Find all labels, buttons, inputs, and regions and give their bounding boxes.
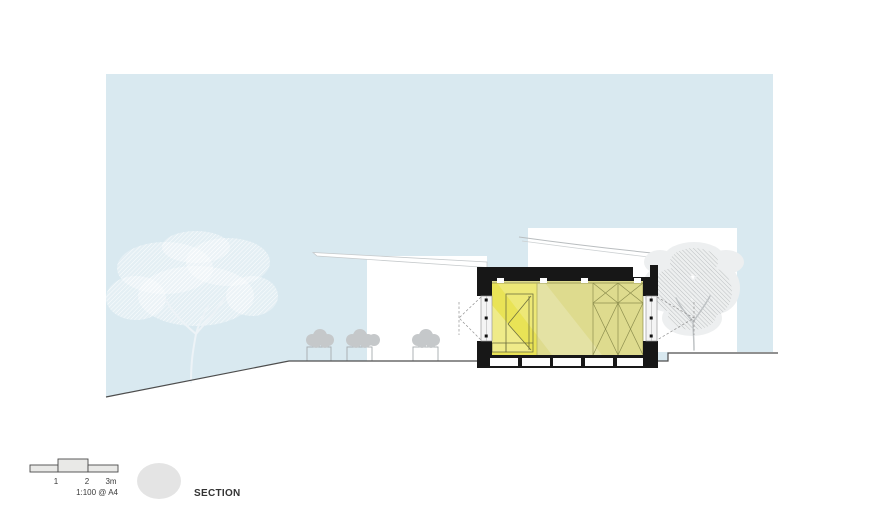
building-interior	[492, 281, 643, 355]
left-wall-upper	[477, 267, 492, 296]
scale-note: 1:100 @ A4	[76, 488, 118, 497]
right-wall-upper	[643, 281, 658, 296]
left-shutter	[481, 296, 492, 341]
title-circle	[137, 463, 181, 499]
roof-parapet-post	[650, 265, 658, 281]
architectural-sheet: 1 2 3m 1:100 @ A4 SECTION	[0, 0, 882, 526]
scale-segment	[58, 459, 88, 472]
scale-bar: 1 2 3m 1:100 @ A4	[30, 459, 119, 497]
section-label: SECTION	[194, 488, 241, 499]
scale-segment	[30, 465, 58, 472]
scale-segment	[88, 465, 118, 472]
scale-tick-3: 3m	[105, 477, 116, 486]
drawing-title: SECTION	[137, 463, 241, 499]
scale-tick-2: 2	[85, 477, 90, 486]
floor-voids	[490, 358, 643, 366]
right-shutter	[646, 296, 657, 341]
scale-tick-1: 1	[54, 477, 59, 486]
section-drawing-canvas: 1 2 3m 1:100 @ A4 SECTION	[0, 0, 882, 526]
